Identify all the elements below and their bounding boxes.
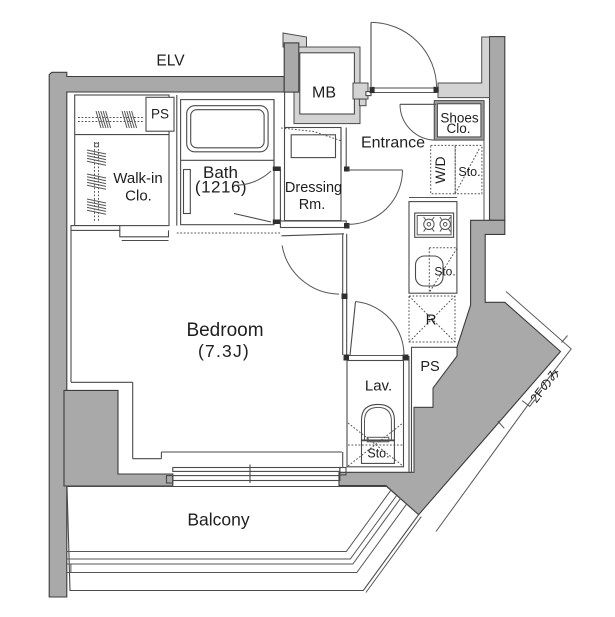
svg-text:PS: PS	[151, 107, 169, 122]
svg-text:Clo.: Clo.	[125, 188, 152, 205]
svg-text:Sto.: Sto.	[458, 165, 480, 179]
svg-text:ELV: ELV	[156, 53, 185, 70]
svg-text:PS: PS	[420, 359, 439, 375]
svg-text:Lav.: Lav.	[365, 378, 392, 395]
svg-text:R: R	[426, 312, 437, 329]
svg-text:Sto.: Sto.	[434, 265, 455, 279]
svg-text:Clo.: Clo.	[446, 121, 470, 136]
svg-text:(7.3J): (7.3J)	[198, 341, 250, 361]
svg-text:Bedroom: Bedroom	[186, 320, 263, 341]
svg-text:W/D: W/D	[432, 156, 448, 183]
svg-text:(1216): (1216)	[195, 178, 247, 197]
svg-text:Walk-in: Walk-in	[113, 170, 162, 187]
svg-text:Entrance: Entrance	[361, 135, 425, 152]
svg-text:MB: MB	[312, 84, 336, 101]
svg-text:Sto.: Sto.	[367, 447, 389, 461]
svg-text:Dressing: Dressing	[285, 180, 342, 196]
svg-text:Balcony: Balcony	[187, 510, 250, 530]
svg-text:Rm.: Rm.	[299, 197, 326, 213]
